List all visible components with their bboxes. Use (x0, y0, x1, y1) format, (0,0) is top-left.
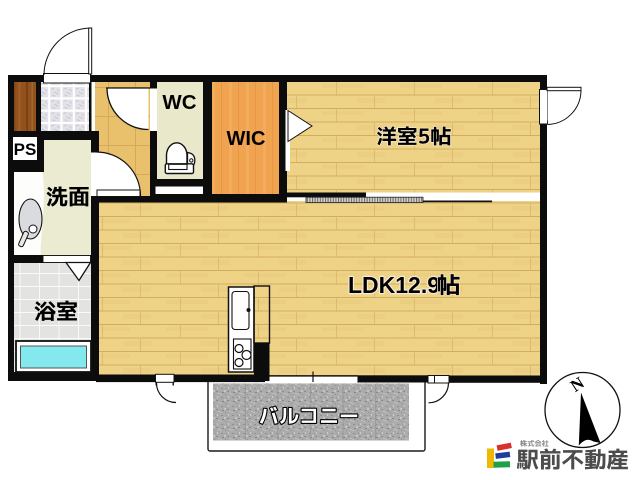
svg-text:WIC: WIC (227, 128, 266, 150)
svg-text:LDK12.9: LDK12.9 (348, 272, 440, 298)
svg-text:WC: WC (162, 91, 196, 114)
svg-text:PS: PS (14, 140, 37, 159)
